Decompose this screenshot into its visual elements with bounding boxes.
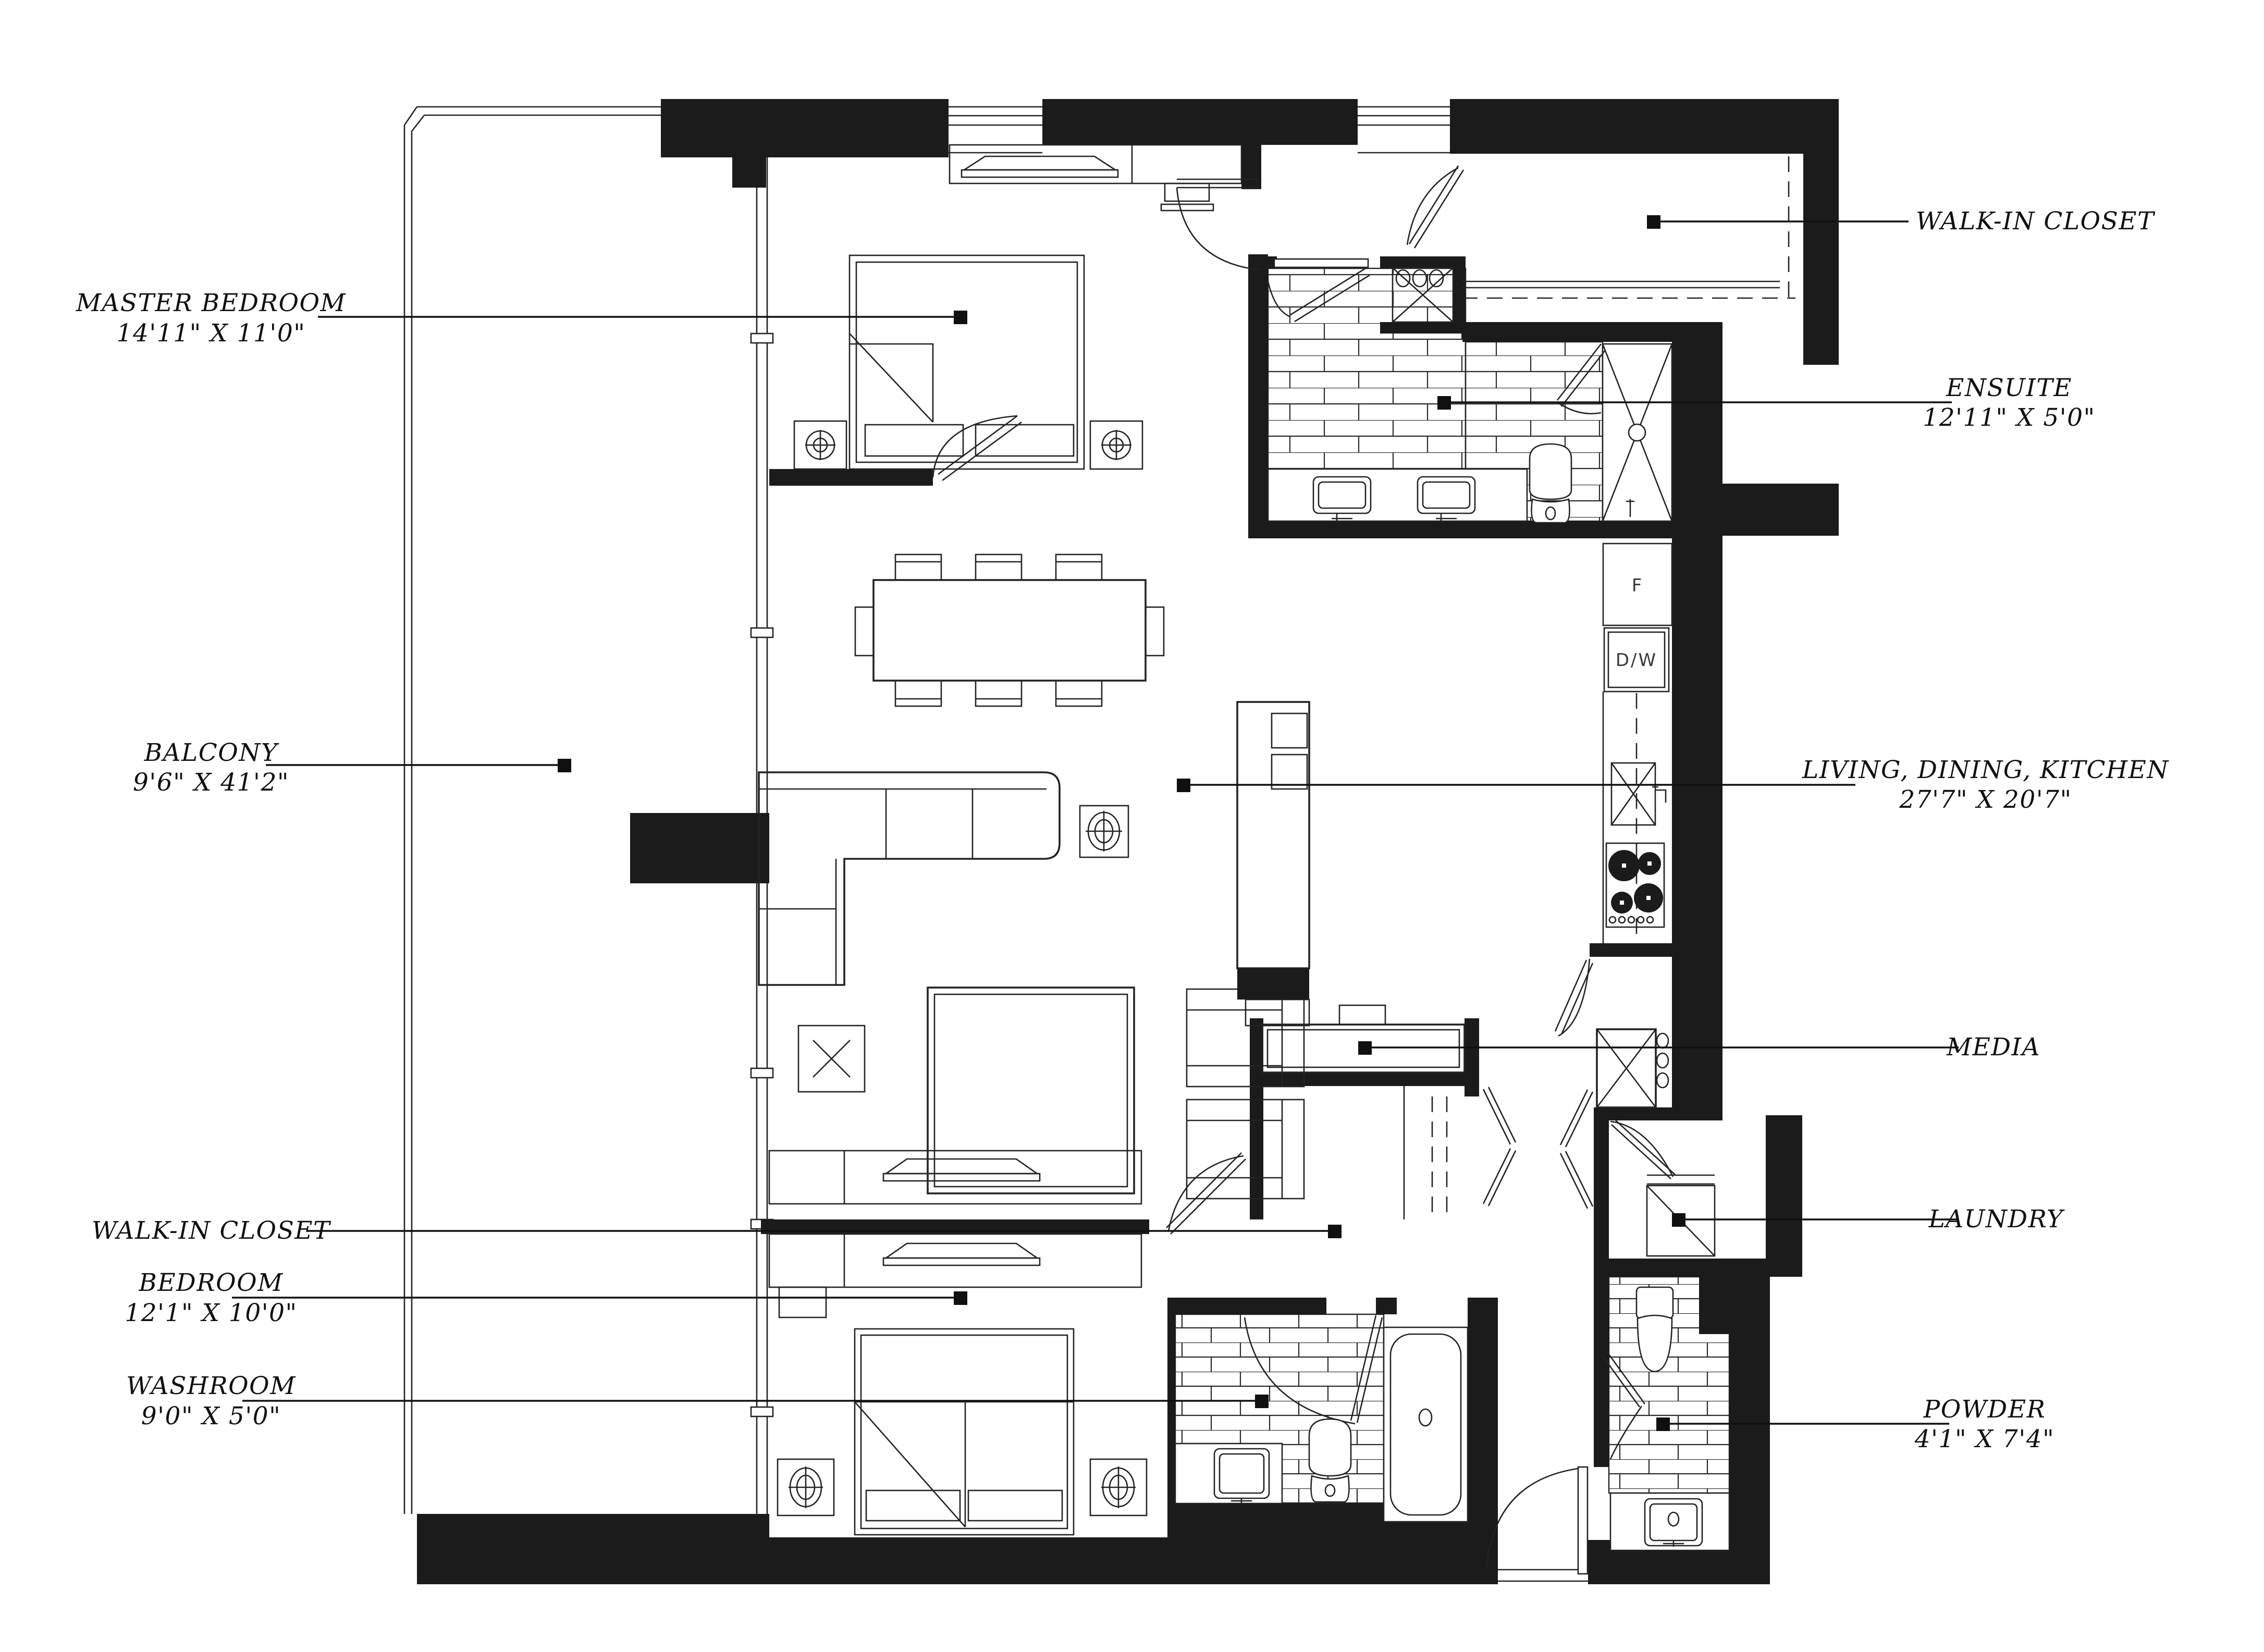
entry-door-arc [1486,1469,1578,1570]
pillow [968,1490,1062,1521]
label-bedroom: BEDROOM [138,1268,284,1297]
label-balcony: BALCONY [144,738,279,767]
label-walk-in-closet-right: WALK-IN CLOSET [1916,207,2156,236]
balcony-corner-chamfer [404,107,424,131]
fridge-label: F [1632,575,1644,596]
washroom-toilet [1309,1419,1351,1502]
island-sink [1272,713,1307,748]
kitchen-island [1237,702,1309,968]
entry-threshold [1498,1570,1588,1581]
label-washroom-dims: 9'0" X 5'0" [141,1402,281,1431]
floor-plan-drawing: F D/W [0,0,2264,1652]
laundry-door-leaf [1611,1120,1675,1179]
kitchen-door-arc [1558,959,1590,1036]
bed-fold [850,334,933,422]
island-sink [1272,755,1307,789]
bedroom-door-leaf [938,416,1022,480]
bedroom2-door-arc [1168,1156,1244,1231]
label-master-bedroom-dims: 14'11" X 11'0" [117,319,306,348]
label-washroom: WASHROOM [126,1372,296,1400]
entry-door-leaf [1578,1467,1588,1574]
label-media: MEDIA [1946,1033,2040,1062]
laundry-door-arc [1610,1121,1673,1177]
dining-area [855,554,1164,706]
dining-chairs [855,554,1164,706]
closet-door-leaf [1409,166,1463,248]
label-powder-dims: 4'1" X 7'4" [1914,1425,2055,1453]
bathtub [1384,1327,1468,1522]
mechanical-shaft [1597,1029,1668,1107]
bed [855,1329,1074,1535]
foyer [950,145,1259,270]
coffee-table [928,988,1134,1193]
media-component [1339,1005,1385,1025]
balcony [404,107,661,1514]
master-bedroom-room [794,255,1142,480]
label-ensuite-dims: 12'11" X 5'0" [1923,403,2095,432]
dining-table [873,580,1146,681]
entry [1486,1467,1588,1581]
master-door-arc [1177,188,1259,270]
armchair [1187,1100,1304,1199]
master-bed [850,255,1084,469]
pillow [976,425,1074,456]
floor-plan-page: F D/W [0,0,2264,1652]
foyer-closet-shelf [964,156,1115,170]
balcony-top-rail [417,107,661,115]
shower-drain [1629,424,1645,441]
label-master-bedroom: MASTER BEDROOM [76,289,347,317]
laundry-room [1610,1120,1715,1256]
powder-counter [1610,1493,1729,1550]
label-living-dining-kitchen: LIVING, DINING, KITCHEN [1802,756,2169,784]
faucet-icon [1652,787,1666,803]
ensuite-toilet [1530,444,1571,523]
balcony-left-rail [404,125,412,1514]
cooktop [1606,843,1664,927]
foyer-bench [1165,183,1209,201]
powder-toilet [1637,1287,1673,1372]
bedroom-dresser [769,1234,1141,1287]
ensuite-door-panel [1274,259,1368,267]
label-ensuite: ENSUITE [1946,374,2072,402]
label-walk-in-closet-left: WALK-IN CLOSET [92,1216,331,1245]
bedroom2-door-leaf [1166,1153,1246,1234]
washroom-counter [1175,1444,1282,1503]
label-balcony-dims: 9'6" X 41'2" [133,768,289,797]
label-laundry: LAUNDRY [1928,1205,2065,1234]
label-powder: POWDER [1923,1395,2046,1424]
bifold-doors [1483,1087,1593,1209]
ensuite-vanity [1268,469,1527,521]
bed-fold [855,1402,1074,1527]
label-bedroom-dims: 12'1" X 10'0" [125,1299,297,1327]
room-labels: MASTER BEDROOM 14'11" X 11'0" BALCONY 9'… [76,207,2169,1453]
hall-closet-dashed [1432,1096,1447,1214]
dishwasher-label: D/W [1616,650,1657,671]
kitchen: F D/W [1237,544,1672,1036]
label-living-dining-kitchen-dims: 27'7" X 20'7" [1899,785,2072,814]
dresser-return [779,1287,826,1317]
living-area [759,772,1304,1199]
kitchen-door-leaf [1555,960,1593,1034]
sectional-sofa [759,772,1060,985]
